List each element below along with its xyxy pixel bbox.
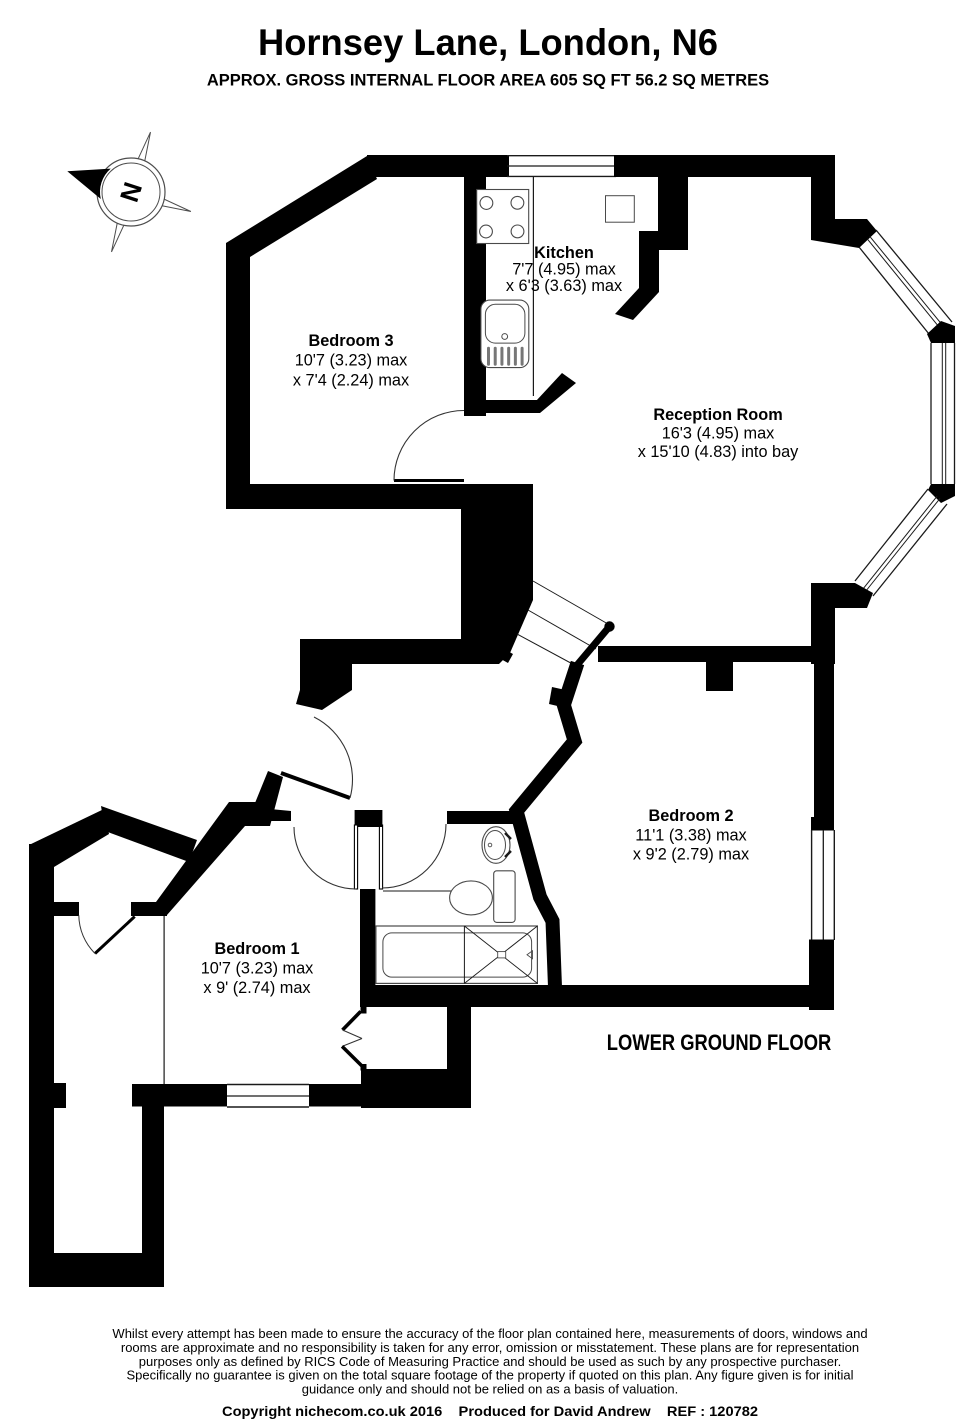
svg-text:Copyright nichecom.co.uk 2016: Copyright nichecom.co.uk 2016 Produced f… xyxy=(222,1404,758,1420)
svg-text:Whilst every attempt has been: Whilst every attempt has been made to en… xyxy=(112,1326,867,1341)
svg-text:7'7 (4.95) max: 7'7 (4.95) max xyxy=(512,261,616,279)
svg-text:16'3 (4.95) max: 16'3 (4.95) max xyxy=(662,425,775,443)
svg-text:x 9'2 (2.79) max: x 9'2 (2.79) max xyxy=(633,846,749,864)
svg-text:Bedroom 2: Bedroom 2 xyxy=(648,807,733,825)
svg-text:x 9' (2.74) max: x 9' (2.74) max xyxy=(203,979,310,997)
svg-text:x 6'3 (3.63) max: x 6'3 (3.63) max xyxy=(506,277,622,295)
svg-text:Reception Room: Reception Room xyxy=(653,406,782,424)
svg-text:rooms are approximate and no r: rooms are approximate and no responsibil… xyxy=(121,1340,859,1355)
svg-text:11'1 (3.38) max: 11'1 (3.38) max xyxy=(635,826,746,844)
svg-text:10'7 (3.23) max: 10'7 (3.23) max xyxy=(295,352,408,370)
svg-text:x 7'4 (2.24) max: x 7'4 (2.24) max xyxy=(293,371,409,389)
svg-text:10'7 (3.23) max: 10'7 (3.23) max xyxy=(201,960,314,978)
svg-text:LOWER GROUND FLOOR: LOWER GROUND FLOOR xyxy=(607,1030,832,1055)
svg-text:guidance only and should not b: guidance only and should not be relied o… xyxy=(302,1382,679,1397)
svg-text:x 15'10 (4.83) into bay: x 15'10 (4.83) into bay xyxy=(638,443,799,461)
svg-text:Hornsey Lane, London, N6: Hornsey Lane, London, N6 xyxy=(258,22,718,63)
svg-text:APPROX. GROSS INTERNAL FLOOR A: APPROX. GROSS INTERNAL FLOOR AREA 605 SQ… xyxy=(207,72,769,90)
svg-text:Specifically no guarantee is g: Specifically no guarantee is given on th… xyxy=(126,1368,853,1383)
svg-text:Bedroom 3: Bedroom 3 xyxy=(308,332,393,350)
svg-text:Kitchen: Kitchen xyxy=(534,244,594,262)
svg-text:purposes only as defined by RI: purposes only as defined by RICS Code of… xyxy=(139,1354,841,1369)
svg-text:Bedroom 1: Bedroom 1 xyxy=(214,940,299,958)
